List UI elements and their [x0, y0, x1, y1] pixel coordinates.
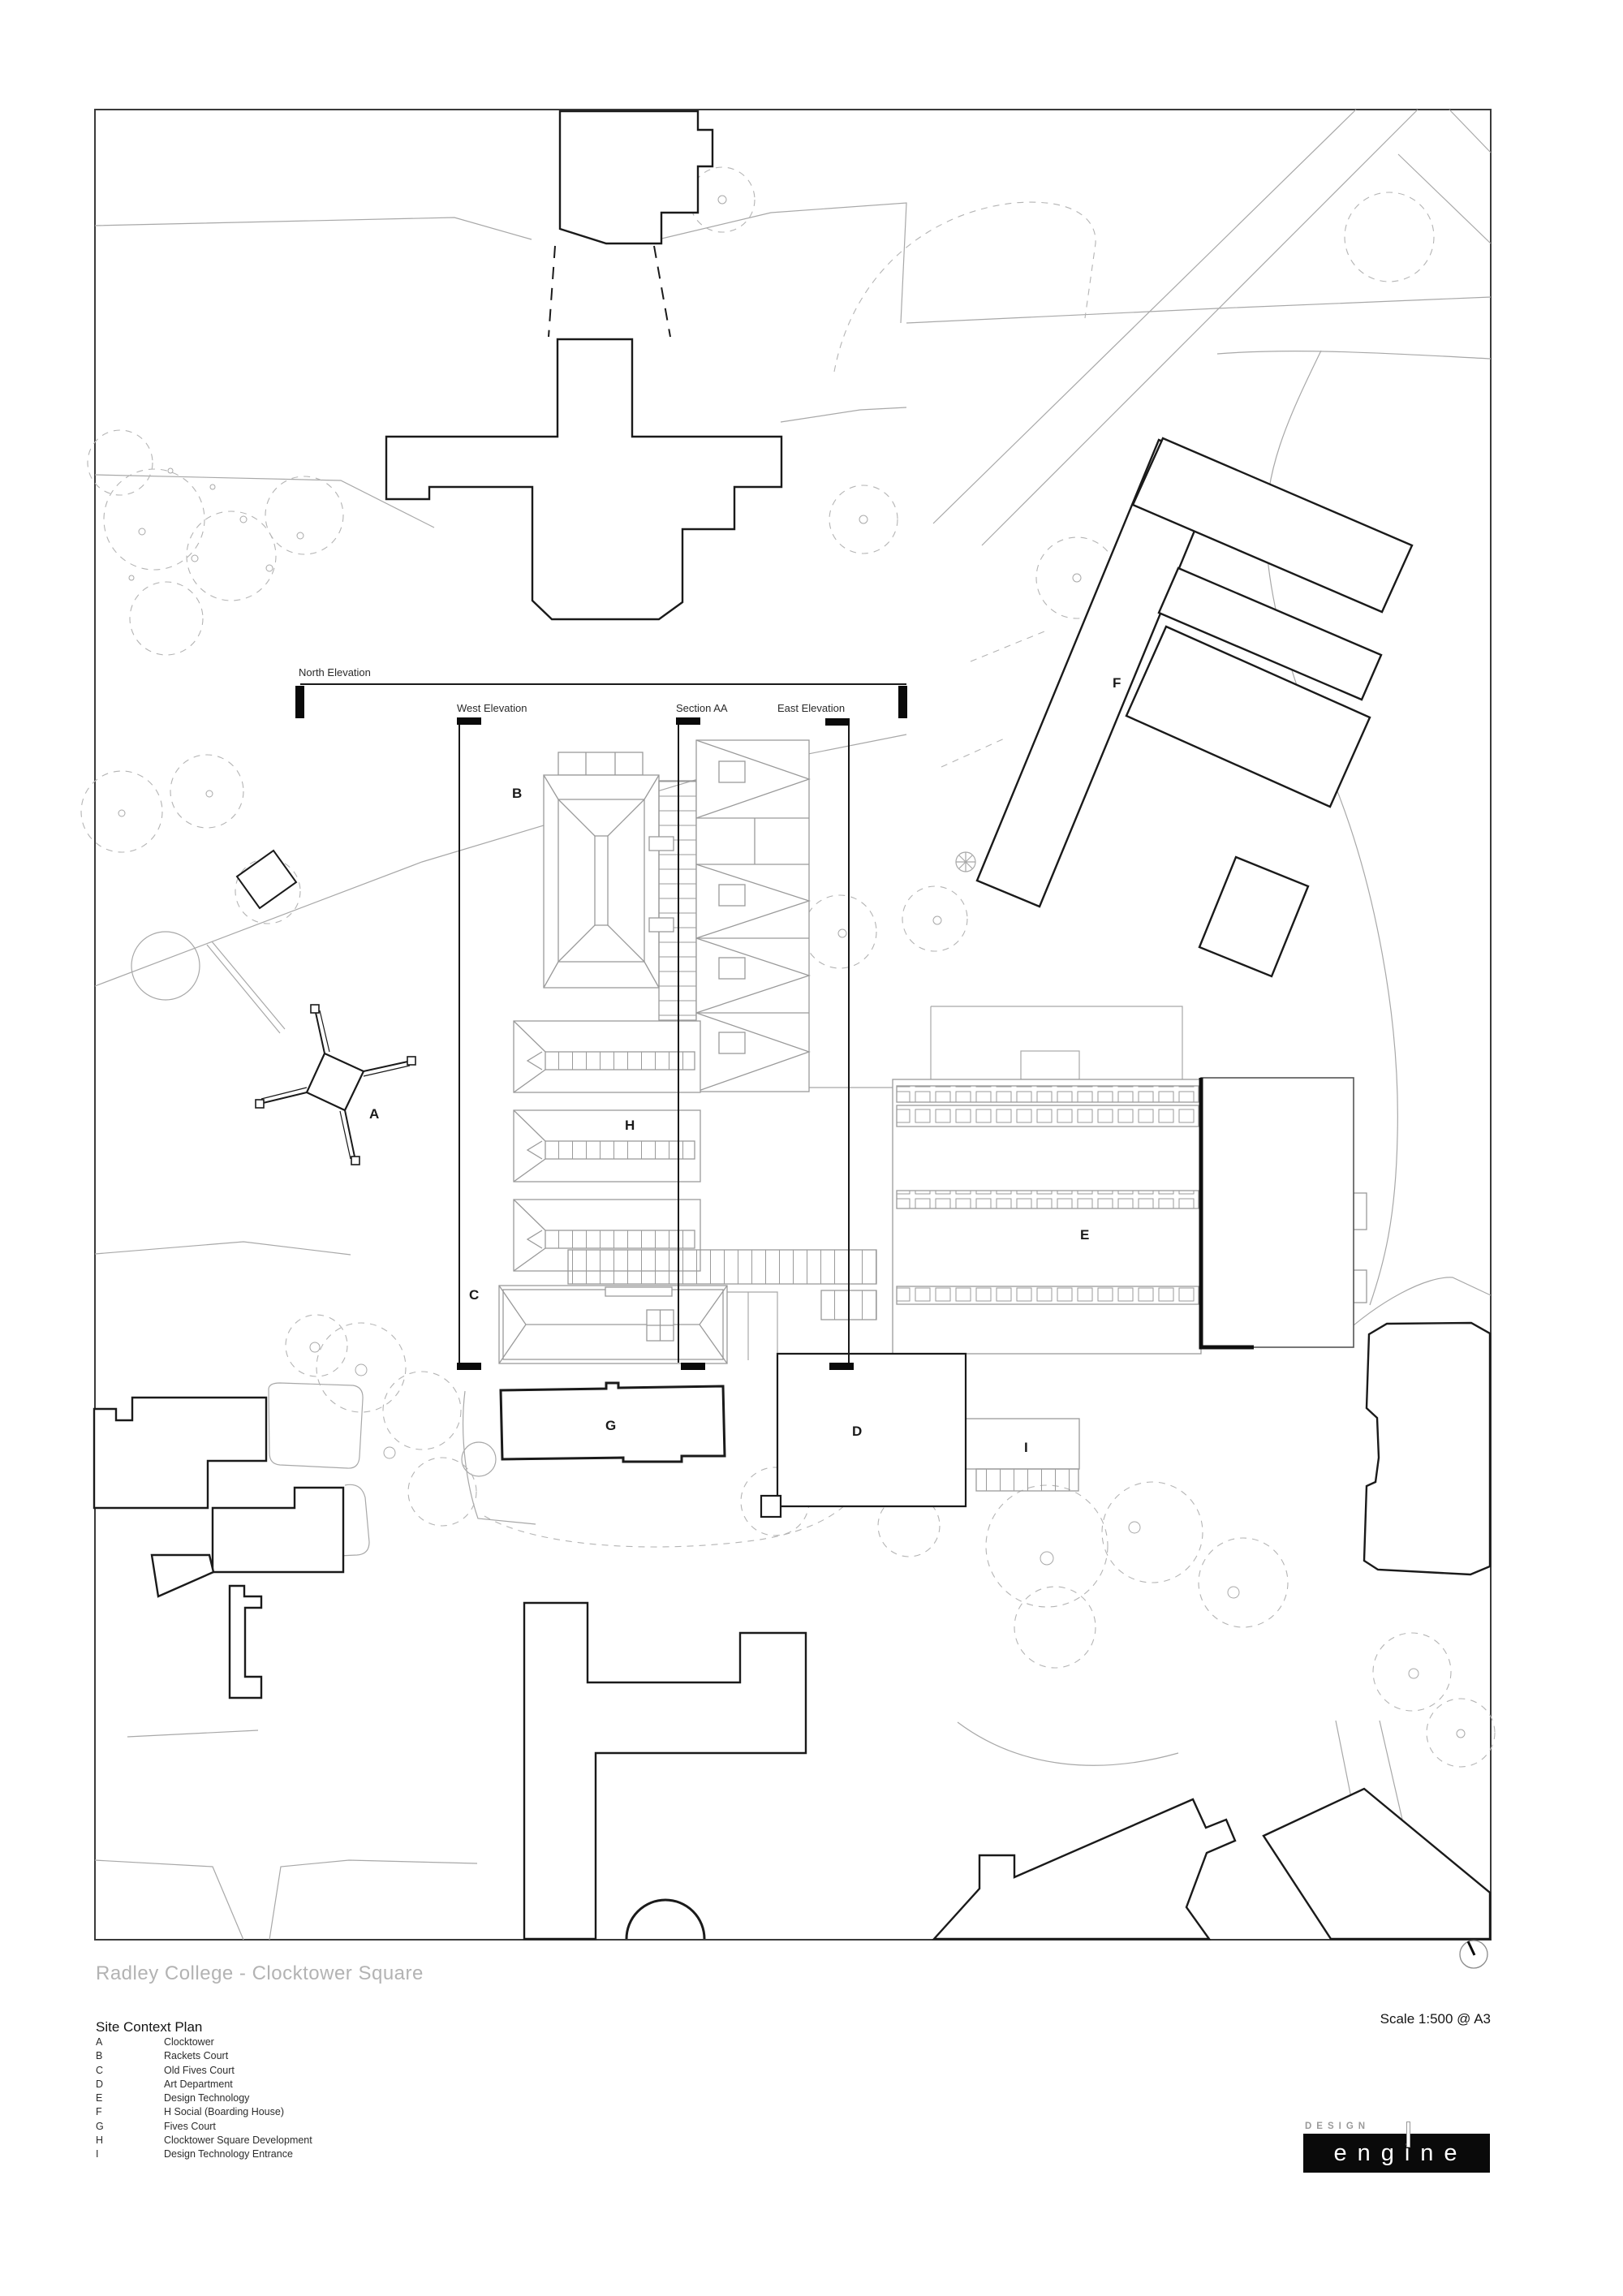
legend-key: C	[96, 2064, 164, 2078]
building-label-g: G	[605, 1418, 616, 1433]
design-technology-shed	[1201, 1078, 1354, 1347]
legend-label: H Social (Boarding House)	[164, 2105, 284, 2119]
legend-key: E	[96, 2091, 164, 2105]
logo-box: engine	[1303, 2134, 1490, 2173]
logo-i-stem	[1407, 2122, 1410, 2147]
legend-key: F	[96, 2105, 164, 2119]
west-elevation-label: West Elevation	[457, 702, 527, 714]
title-block: Radley College - Clocktower Square Site …	[96, 1962, 1491, 2035]
site-context-plan-sheet: North Elevation West Elevation Section A…	[0, 0, 1623, 2296]
plan-drawing: North Elevation West Elevation Section A…	[0, 0, 1623, 2296]
logo-design-text: DESIGN	[1305, 2122, 1490, 2131]
legend-label: Fives Court	[164, 2120, 216, 2134]
legend-row: FH Social (Boarding House)	[96, 2105, 312, 2119]
building-label-i: I	[1024, 1440, 1028, 1455]
legend-row: AClocktower	[96, 2035, 312, 2049]
design-engine-logo: DESIGN engine	[1303, 2122, 1490, 2173]
legend-label: Art Department	[164, 2078, 233, 2091]
legend-row: EDesign Technology	[96, 2091, 312, 2105]
legend-label: Clocktower Square Development	[164, 2134, 312, 2147]
legend-label: Old Fives Court	[164, 2064, 235, 2078]
building-label-c: C	[469, 1287, 479, 1303]
legend-key: D	[96, 2078, 164, 2091]
legend-label: Design Technology Entrance	[164, 2147, 293, 2161]
legend-key: A	[96, 2035, 164, 2049]
east-elevation-label: East Elevation	[777, 702, 845, 714]
legend-label: Rackets Court	[164, 2049, 228, 2063]
building-label-b: B	[512, 786, 522, 801]
arc-feature	[626, 1900, 704, 1939]
legend-row: GFives Court	[96, 2120, 312, 2134]
logo-name-text: engine	[1333, 2140, 1467, 2167]
section-aa-label: Section AA	[676, 702, 728, 714]
legend-key: I	[96, 2147, 164, 2161]
legend-label: Clocktower	[164, 2035, 214, 2049]
page-title: Radley College - Clocktower Square	[96, 1962, 1491, 1985]
legend-row: BRackets Court	[96, 2049, 312, 2063]
legend-row: DArt Department	[96, 2078, 312, 2091]
building-label-a: A	[369, 1106, 379, 1122]
legend-key: B	[96, 2049, 164, 2063]
legend-key: H	[96, 2134, 164, 2147]
legend-label: Design Technology	[164, 2091, 249, 2105]
tower-link-dashed	[549, 246, 670, 337]
legend-key: G	[96, 2120, 164, 2134]
legend-row: HClocktower Square Development	[96, 2134, 312, 2147]
page-subtitle: Site Context Plan	[96, 2019, 1491, 2035]
legend-row: COld Fives Court	[96, 2064, 312, 2078]
building-label-d: D	[852, 1424, 862, 1439]
building-label-e: E	[1080, 1227, 1089, 1243]
legend-row: IDesign Technology Entrance	[96, 2147, 312, 2161]
building-label-h: H	[625, 1118, 635, 1133]
legend: AClocktower BRackets Court COld Fives Co…	[96, 2035, 312, 2162]
north-elevation-label: North Elevation	[299, 666, 371, 678]
scale-note: Scale 1:500 @ A3	[1380, 2011, 1491, 2027]
building-label-f: F	[1113, 675, 1121, 691]
clocktower-symbol	[256, 1005, 415, 1165]
